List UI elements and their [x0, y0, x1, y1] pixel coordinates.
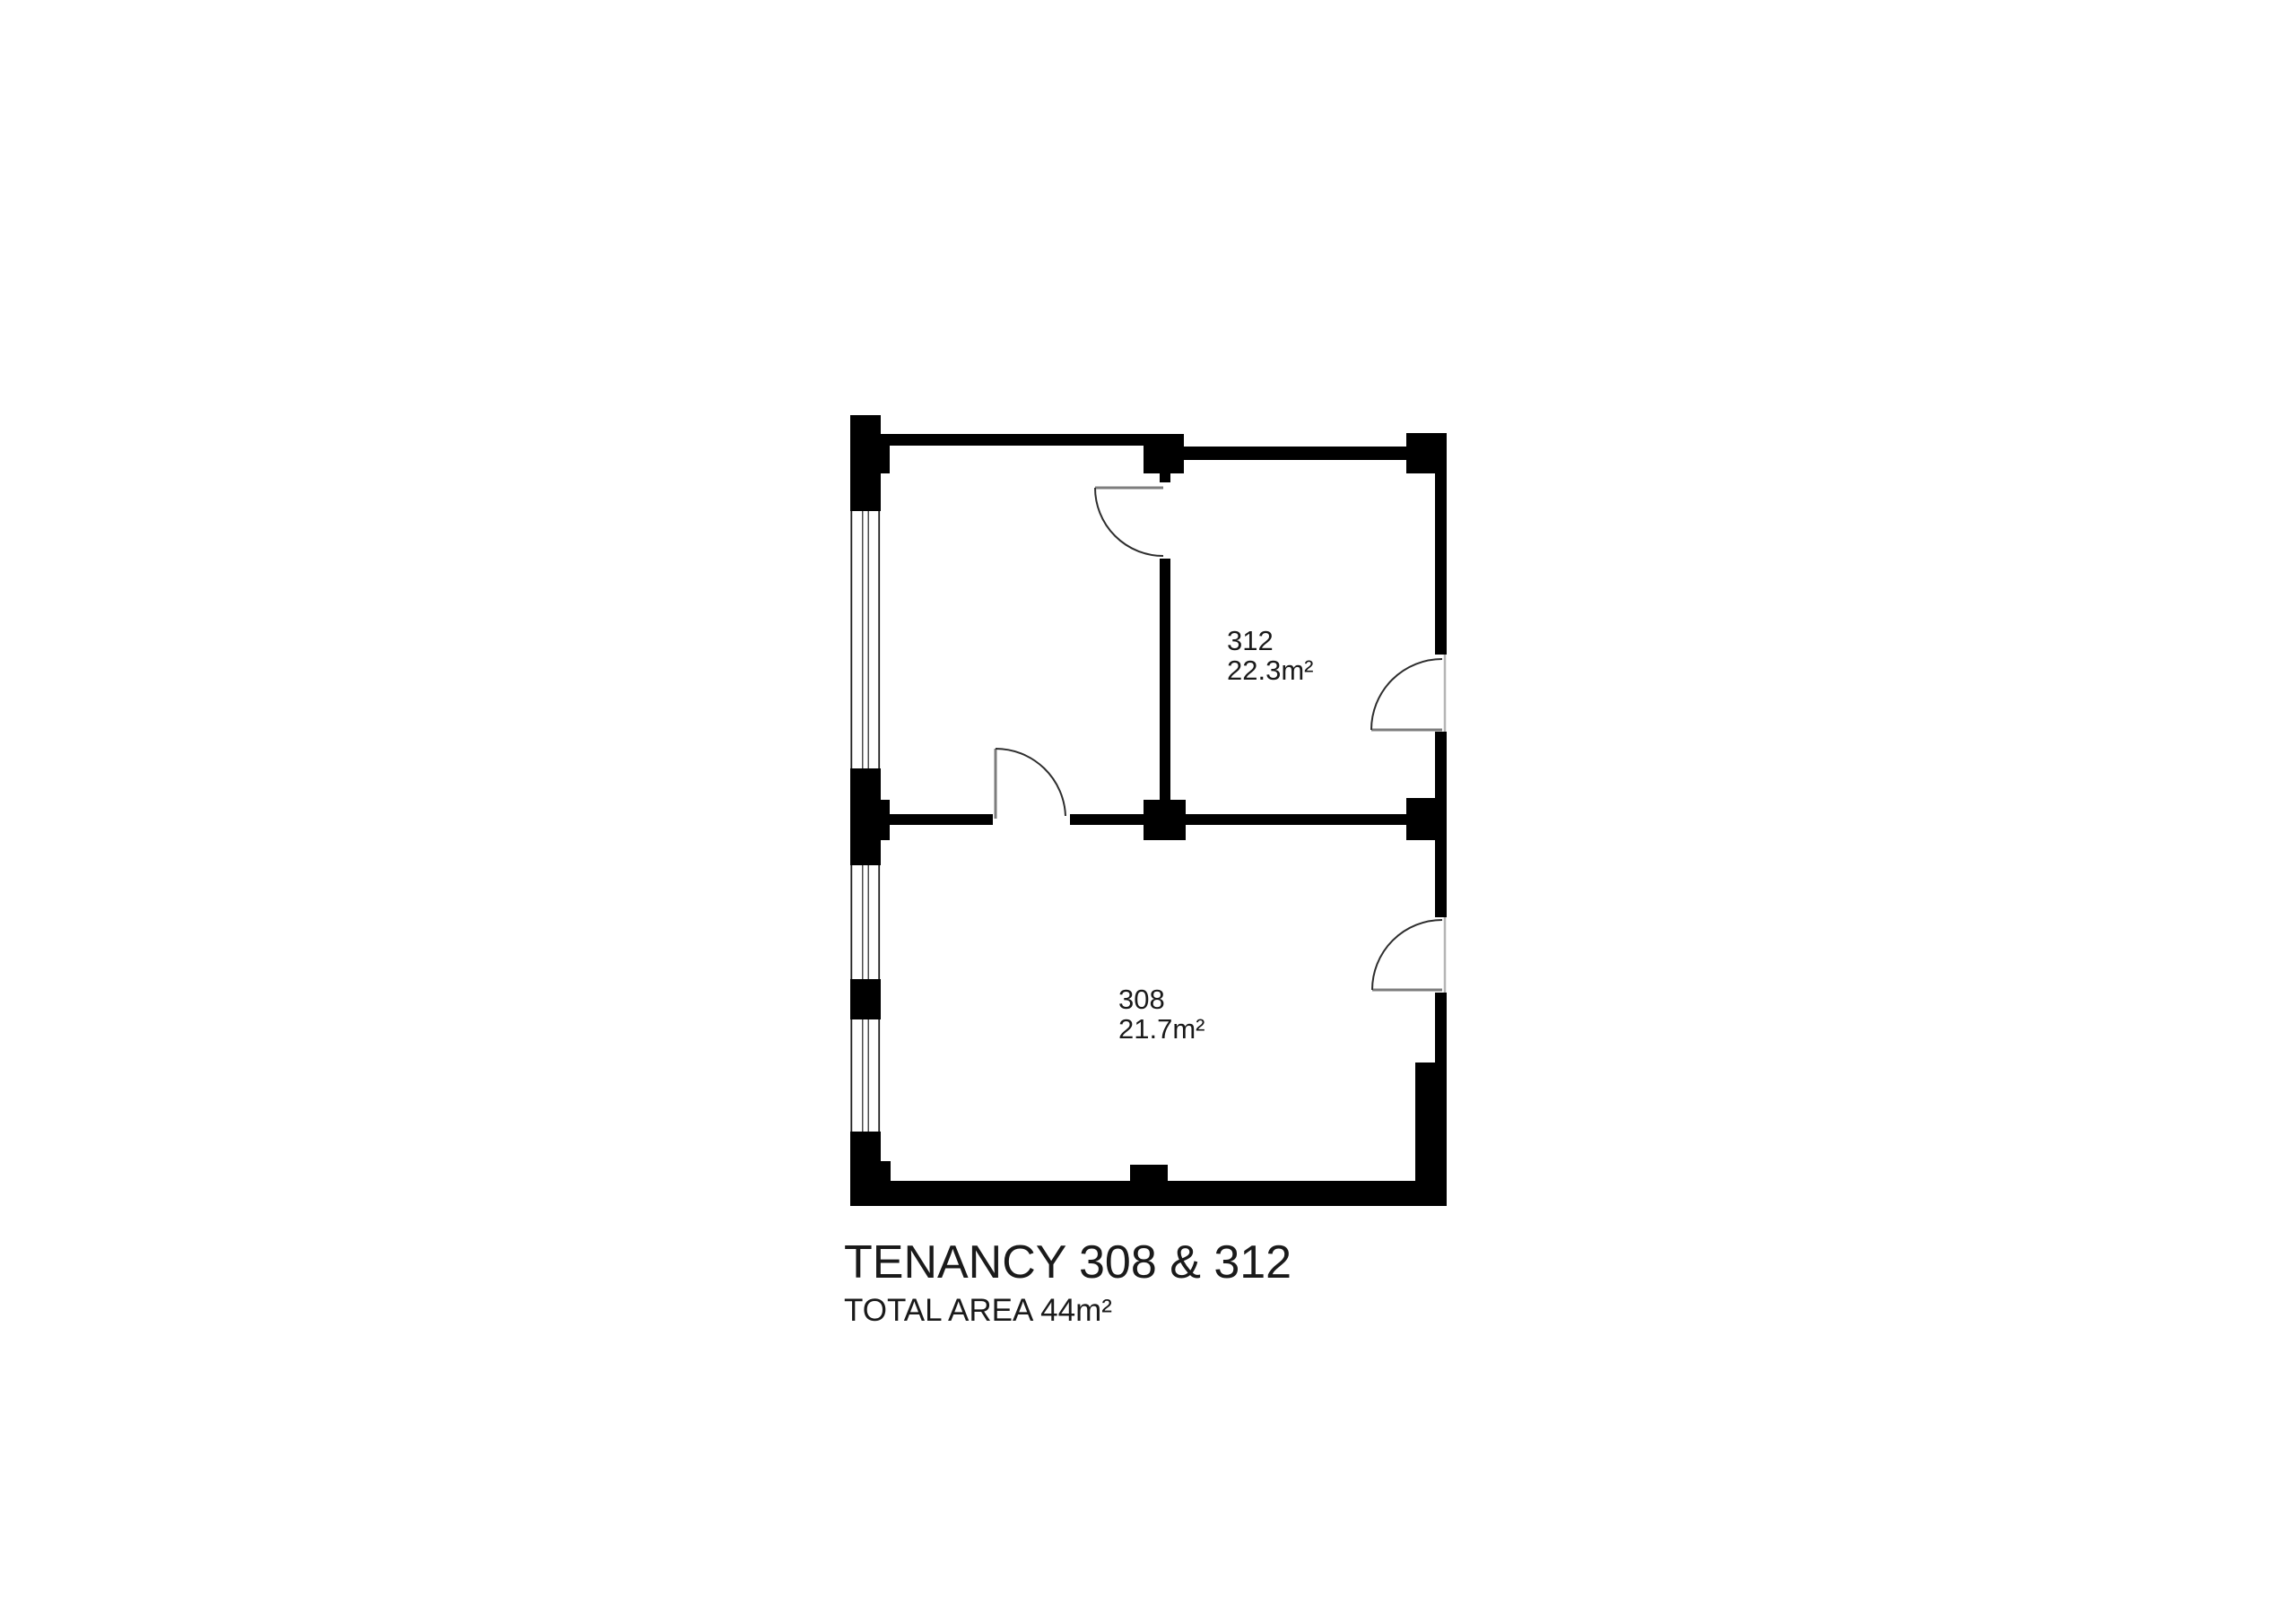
wall-top-right: [1184, 447, 1406, 460]
wall-top-left: [890, 434, 1144, 446]
wall-middle-seg-b: [1070, 814, 1144, 825]
door-entry-308: [1372, 917, 1445, 993]
pillar-bottom-bump: [1130, 1165, 1168, 1181]
room-number-308: 308: [1118, 984, 1205, 1014]
walls: [850, 415, 1447, 1206]
window-2: [851, 865, 879, 979]
pillar-top-left-ext: [881, 434, 890, 473]
door-swing-arc: [996, 749, 1065, 816]
wall-right-seg-d: [1435, 993, 1447, 1063]
door-swing-arc: [1372, 920, 1442, 990]
pillar-bottom-left-ext: [881, 1161, 891, 1206]
window-3: [851, 1019, 879, 1132]
wall-right-seg-a: [1435, 473, 1447, 655]
room-area-308: 21.7m²: [1118, 1014, 1205, 1044]
room-label-312: 312 22.3m²: [1227, 626, 1313, 685]
wall-divider-vertical: [1160, 559, 1170, 800]
door-hall-to-308: [996, 749, 1065, 819]
room-area-312: 22.3m²: [1227, 655, 1313, 685]
door-swing-arc: [1371, 659, 1442, 730]
wall-right-seg-b: [1435, 732, 1447, 798]
wall-bottom: [891, 1181, 1447, 1206]
wall-middle-seg-a: [890, 814, 993, 825]
plan-subtitle: TOTAL AREA 44m²: [844, 1294, 1112, 1328]
door-swing-arc: [1095, 488, 1163, 556]
floorplan-drawing: [0, 0, 2296, 1622]
room-number-312: 312: [1227, 626, 1313, 655]
wall-stub-under-pillar: [1160, 473, 1170, 482]
pillar-bottom-left: [850, 1132, 881, 1206]
window-1: [851, 511, 879, 768]
pillar-mid-left-ext: [881, 800, 890, 840]
door-hall-to-312: [1095, 488, 1163, 556]
door-entry-312: [1371, 655, 1445, 732]
pillar-mid-left: [850, 768, 881, 865]
pillar-top-right: [1406, 433, 1447, 473]
pillar-small-left: [850, 979, 881, 1019]
wall-right-seg-c: [1435, 840, 1447, 917]
plan-title: TENANCY 308 & 312: [844, 1238, 1291, 1287]
room-label-308: 308 21.7m²: [1118, 984, 1205, 1044]
floorplan-page: 312 22.3m² 308 21.7m² TENANCY 308 & 312 …: [0, 0, 2296, 1622]
pillar-middle-center: [1144, 800, 1186, 840]
pillar-top-center: [1144, 434, 1184, 473]
pillar-top-left: [850, 415, 881, 511]
doors: [996, 488, 1445, 993]
pillar-mid-right: [1406, 798, 1447, 840]
wall-middle-seg-c: [1186, 814, 1406, 825]
